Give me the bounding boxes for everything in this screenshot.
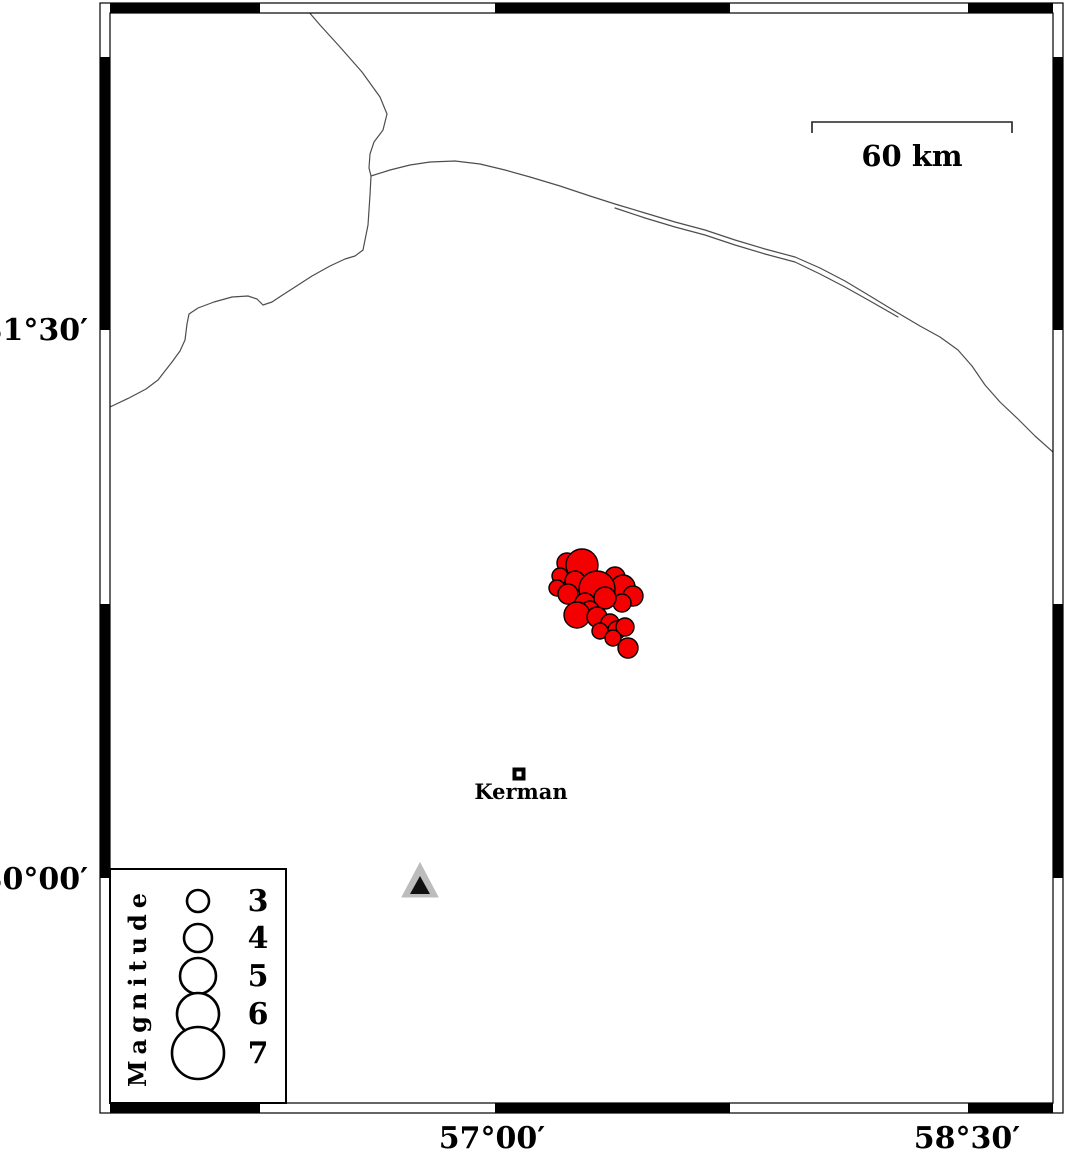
frame-bottom-segment-0 [110,1103,260,1113]
legend-circle-m4 [184,924,212,952]
axis-label-left-1: 30°00′ [0,862,88,897]
legend-magnitude-label-4: 4 [248,921,269,956]
legend-circle-m7 [172,1027,224,1079]
frame-left-segment-1 [100,604,110,878]
earthquake-marker-21 [618,638,638,658]
legend-circle-m3 [187,890,209,912]
map-canvas: Kerman60 kmMagnitude3456731°30′30°00′57°… [0,0,1066,1155]
legend-title: Magnitude [123,887,152,1087]
frame-top-segment-2 [968,3,1053,13]
city-marker-square-inner [517,772,522,777]
legend-circle-m5 [180,958,216,994]
frame-top-segment-1 [495,3,730,13]
city-label: Kerman [474,779,567,804]
axis-label-bottom-0: 57°00′ [439,1121,545,1155]
axis-label-left-0: 31°30′ [0,313,88,348]
scale-bar-label: 60 km [861,139,963,173]
legend-magnitude-label-6: 6 [248,997,269,1032]
frame-right-segment-1 [1053,604,1063,878]
seismicity-map-figure: Kerman60 kmMagnitude3456731°30′30°00′57°… [0,0,1066,1155]
frame-left-segment-0 [100,57,110,330]
axis-label-bottom-1: 58°30′ [914,1121,1020,1155]
legend-magnitude-label-3: 3 [248,884,269,919]
frame-right-segment-0 [1053,57,1063,330]
frame-bottom-segment-2 [968,1103,1053,1113]
frame-top-segment-0 [110,3,260,13]
frame-bottom-segment-1 [495,1103,730,1113]
earthquake-marker-14 [564,602,590,628]
legend-magnitude-label-5: 5 [248,959,269,994]
legend-magnitude-label-7: 7 [248,1036,269,1071]
